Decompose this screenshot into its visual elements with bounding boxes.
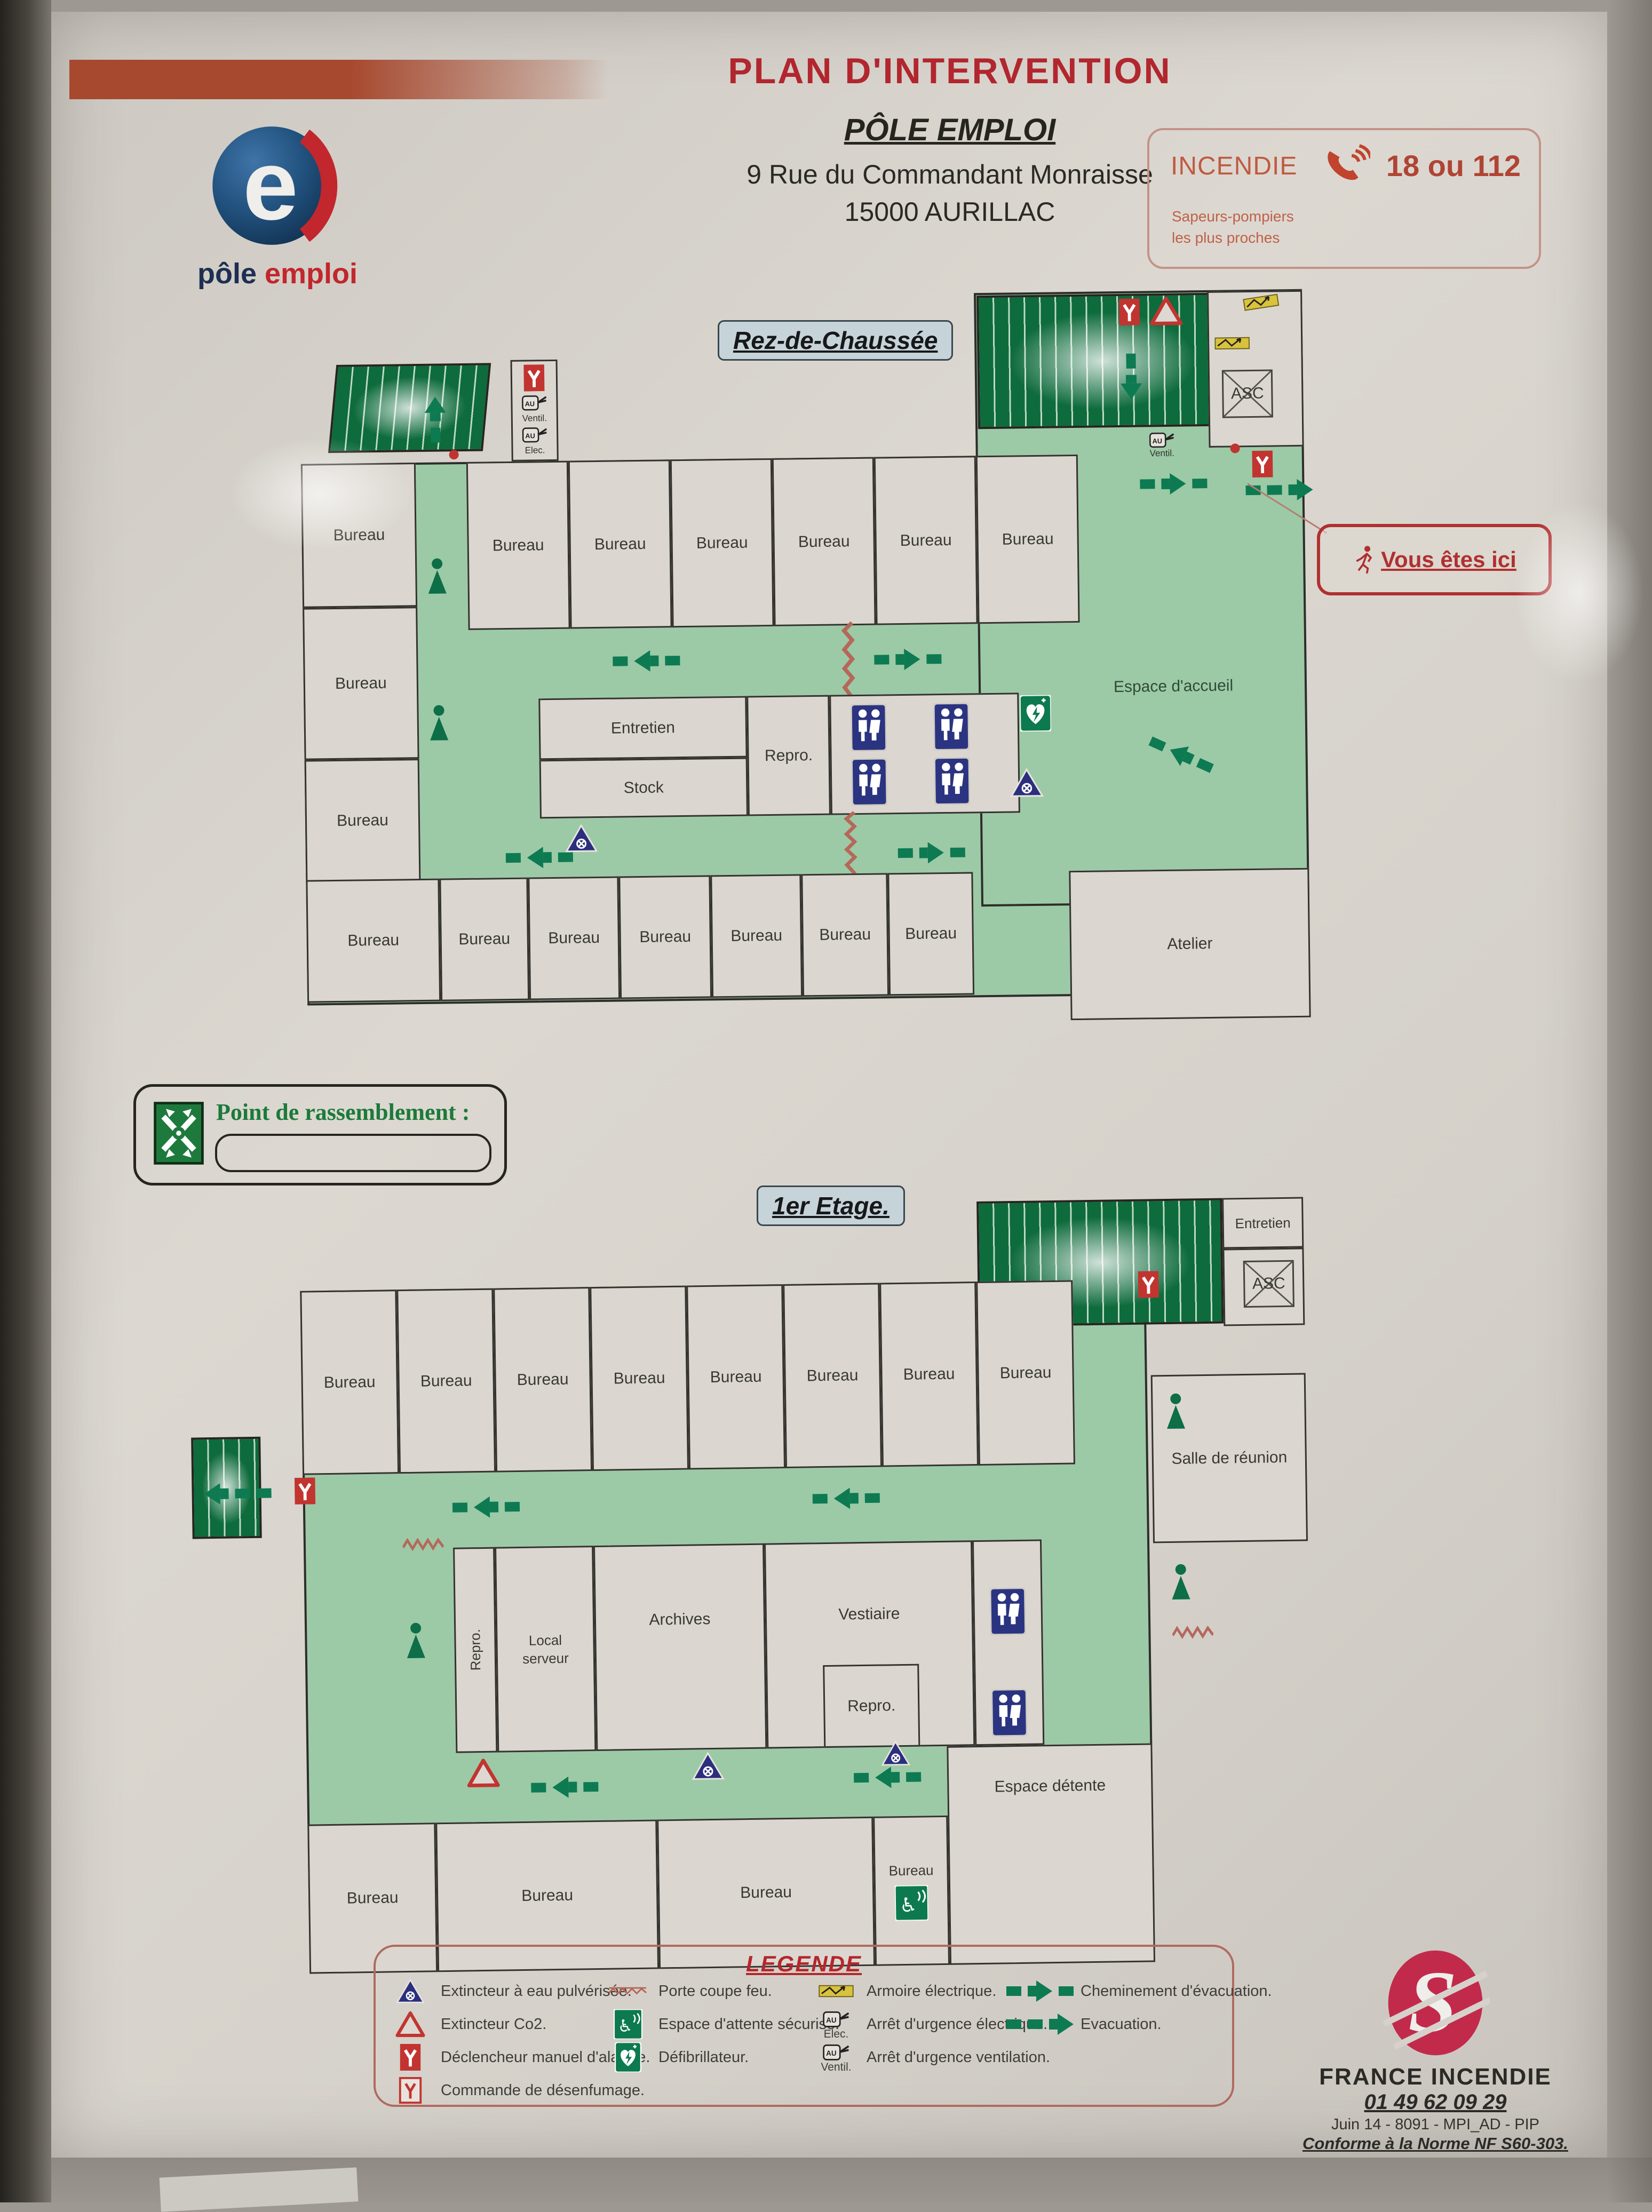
- you-are-here-box: Vous êtes ici: [1317, 524, 1552, 595]
- pole-emploi-logo-icon: e: [209, 118, 344, 253]
- room-bureau: Bureau: [874, 456, 978, 625]
- svg-text:AU: AU: [826, 2049, 837, 2057]
- wc-icon: [991, 1689, 1027, 1737]
- room-entretien: Entretien: [538, 696, 747, 760]
- assembly-point-box: Point de rassemblement :: [133, 1084, 507, 1185]
- svg-text:AU: AU: [1152, 437, 1162, 445]
- ventil-caption: Ventil.: [522, 413, 547, 424]
- room-bureau: Bureau: [710, 874, 803, 998]
- svg-text:AU: AU: [525, 432, 535, 440]
- room-label: Bureau: [888, 1860, 933, 1880]
- assembly-point-icon: [153, 1101, 204, 1166]
- svg-text:♿: ♿: [618, 2017, 633, 2036]
- room-label: Repro.: [465, 1629, 485, 1671]
- legend-title: LEGENDE: [376, 1951, 1232, 1977]
- alarm-dot-icon: [1230, 443, 1240, 453]
- emergency-stop-electric-icon: AU: [822, 2009, 851, 2028]
- extinguisher-co2-icon: [1149, 296, 1183, 327]
- fire-label: INCENDIE: [1171, 152, 1297, 181]
- alarm-trigger-icon: [523, 364, 545, 391]
- legend-item: AUVentil.Arrêt d'urgence ventilation.: [814, 2041, 1050, 2074]
- fire-door-icon: [608, 1985, 648, 1998]
- evacuation-path-icon: [854, 1767, 922, 1789]
- you-are-here-label: Vous êtes ici: [1381, 547, 1516, 572]
- evacuation-path-icon: [452, 1496, 520, 1518]
- room-bureau: Bureau: [783, 1283, 882, 1468]
- evacuation-path-icon: [898, 842, 965, 864]
- footer-phone: 01 49 62 09 29: [1291, 2090, 1579, 2114]
- legend-label: Extincteur à eau pulvérisée.: [441, 1983, 632, 2000]
- room-atelier: Atelier: [1069, 868, 1311, 1020]
- legend-label: Porte coupe feu.: [658, 1983, 772, 2000]
- brand-word-2: emploi: [265, 258, 358, 290]
- footer-reference: Juin 14 - 8091 - MPI_AD - PIP: [1291, 2116, 1579, 2134]
- room-bureau: Bureau: [439, 878, 529, 1001]
- wc-icon: [990, 1588, 1026, 1635]
- evacuation-path-icon: [874, 648, 941, 671]
- room-bureau: Bureau: [303, 607, 419, 760]
- alarm-trigger-icon: [294, 1477, 316, 1505]
- legend-label: Défibrillateur.: [658, 2049, 749, 2066]
- alarm-trigger-icon: [1252, 450, 1274, 477]
- legend-item: Défibrillateur.: [606, 2041, 839, 2074]
- alarm-trigger-icon: [1138, 1271, 1159, 1298]
- legend-item: Commande de désenfumage.: [388, 2074, 650, 2107]
- wc-icon: [934, 757, 970, 805]
- room-bureau: Bureau: [396, 1288, 496, 1474]
- runner-icon: [1352, 545, 1377, 575]
- room-bureau: Bureau ♿: [873, 1816, 950, 1966]
- room-bureau: Bureau: [305, 759, 421, 883]
- extinguisher-co2-icon: [467, 1758, 501, 1788]
- evacuation-exit-icon: [1006, 2014, 1074, 2035]
- legend-label: Cheminement d'évacuation.: [1081, 1983, 1272, 2000]
- extinguisher-water-icon: [880, 1740, 911, 1767]
- ground-floor-plan: AU Ventil. AU Elec. Bureau Bureau Bureau…: [288, 284, 1314, 1043]
- defibrillator-icon: [615, 2042, 641, 2072]
- fire-door-icon: [1172, 1625, 1214, 1640]
- fire-door-icon: [843, 811, 860, 875]
- wc-icon: [852, 758, 887, 806]
- elec-caption: Elec.: [824, 2028, 849, 2040]
- legend-item: ♿Espace d'attente sécurisé.: [606, 2008, 839, 2041]
- electrical-cabinet-icon: [1214, 336, 1250, 351]
- fire-door-icon: [402, 1537, 445, 1551]
- page-title: PLAN D'INTERVENTION: [614, 50, 1286, 92]
- emergency-note-line2: les plus proches: [1172, 227, 1294, 249]
- emergency-numbers: 18 ou 112: [1386, 148, 1521, 183]
- person-evacuating-icon: [1171, 1564, 1191, 1599]
- pole-emploi-wordmark: pôle emploi: [144, 257, 411, 290]
- alarm-trigger-icon: [400, 2044, 421, 2071]
- room-repro: Repro.: [746, 695, 831, 816]
- extinguisher-co2-icon: [395, 2011, 425, 2038]
- evacuation-path-icon: [813, 1487, 880, 1510]
- gf-stairs-icon: [328, 363, 491, 453]
- elevator-icon: ASC: [1222, 369, 1273, 418]
- brand-word-1: pôle: [197, 258, 257, 290]
- alarm-trigger-icon: [1118, 298, 1140, 325]
- room-bureau: Bureau: [528, 877, 620, 1000]
- phone-icon: [1321, 143, 1370, 188]
- elevator-label: ASC: [1245, 1262, 1293, 1306]
- emergency-note: Sapeurs-pompiers les plus proches: [1172, 206, 1294, 249]
- legend-column-2: Porte coupe feu. ♿Espace d'attente sécur…: [606, 1975, 839, 2074]
- room-bureau: Bureau: [976, 455, 1080, 624]
- legend-label: Armoire électrique.: [867, 1983, 996, 2000]
- person-evacuating-icon: [1166, 1394, 1186, 1429]
- evacuation-path-icon: [613, 650, 680, 672]
- assembly-point-blank-field: [215, 1134, 491, 1172]
- svg-text:e: e: [243, 129, 298, 241]
- fire-emergency-box: INCENDIE 18 ou 112 Sapeurs-pompiers les …: [1147, 128, 1541, 269]
- emergency-stop-electric-icon: AU: [521, 425, 549, 444]
- footer-company: FRANCE INCENDIE: [1291, 2064, 1579, 2090]
- room-bureau: Bureau: [801, 873, 889, 997]
- room-entretien: Entretien: [1222, 1197, 1304, 1248]
- extinguisher-water-icon: [690, 1751, 725, 1781]
- smoke-control-icon: [399, 2077, 422, 2104]
- wc-icon: [933, 703, 969, 750]
- evacuation-path-icon: [1006, 1980, 1074, 2002]
- person-evacuating-icon: [427, 558, 447, 593]
- emergency-stop-ventilation-icon: AU: [822, 2042, 851, 2062]
- assembly-point-label: Point de rassemblement :: [216, 1099, 470, 1126]
- room-local-serveur: Local serveur: [495, 1546, 596, 1753]
- legend-item: Cheminement d'évacuation.: [1008, 1975, 1272, 2008]
- evacuation-path-icon: [1140, 473, 1207, 495]
- electrical-cabinet-icon: [819, 1984, 854, 1999]
- evacuation-path-icon: [1120, 353, 1142, 399]
- room-espace-detente: Espace détente: [947, 1743, 1155, 1964]
- room-repro: Repro.: [453, 1547, 497, 1753]
- footer-norm: Conforme à la Norme NF S60-303.: [1291, 2134, 1579, 2153]
- svg-text:AU: AU: [826, 2016, 837, 2024]
- gf-entrance-stairs-icon: [976, 292, 1229, 429]
- alarm-dot-icon: [449, 450, 459, 459]
- room-bureau: Bureau: [300, 1290, 399, 1475]
- room-bureau: Bureau: [618, 875, 712, 999]
- person-evacuating-icon: [406, 1622, 426, 1658]
- room-bureau: Bureau: [301, 463, 417, 608]
- room-repro: Repro.: [823, 1664, 920, 1748]
- evacuation-exit-icon: [204, 1482, 272, 1505]
- emergency-stop-ventilation-icon: AU: [520, 393, 548, 412]
- room-bureau: Bureau: [306, 879, 441, 1003]
- secure-waiting-area-icon: ♿: [895, 1885, 928, 1921]
- svg-text:AU: AU: [525, 400, 535, 408]
- defibrillator-icon: [1020, 695, 1051, 732]
- room-bureau: Bureau: [879, 1282, 979, 1467]
- legend-box: LEGENDE Extincteur à eau pulvérisée. Ext…: [374, 1945, 1234, 2107]
- elec-caption: Elec.: [525, 445, 545, 455]
- person-evacuating-icon: [429, 705, 449, 740]
- emergency-note-line1: Sapeurs-pompiers: [1172, 206, 1294, 227]
- frame-right-shadow: [1607, 0, 1652, 2202]
- first-floor-plan: Entretien ASC Salle de réunion Bureau Bu…: [288, 1189, 1315, 1990]
- elevator-label: ASC: [1224, 371, 1272, 417]
- legend-label: Espace d'attente sécurisé.: [658, 2016, 839, 2033]
- fire-door-icon: [841, 621, 858, 700]
- room-bureau: Bureau: [976, 1280, 1075, 1465]
- frame-left-edge: [0, 0, 51, 2202]
- secure-waiting-area-icon: ♿: [614, 2009, 642, 2039]
- evacuation-path-icon: [506, 847, 573, 869]
- header-accent-bar: [69, 60, 608, 99]
- legend-column-4: Cheminement d'évacuation. Evacuation.: [1008, 1975, 1272, 2041]
- room-bureau: Bureau: [590, 1286, 689, 1471]
- ventil-caption: Ventil.: [821, 2062, 851, 2073]
- photo-of-intervention-plan: PLAN D'INTERVENTION PÔLE EMPLOI 9 Rue du…: [0, 0, 1652, 2202]
- extinguisher-water-icon: [1009, 767, 1045, 799]
- legend-item: Evacuation.: [1008, 2008, 1272, 2041]
- extinguisher-water-icon: [395, 1978, 425, 2004]
- gf-utility-panel: AU Ventil. AU Elec.: [510, 360, 558, 462]
- ventil-caption: Ventil.: [1149, 449, 1174, 459]
- room-bureau: Bureau: [466, 461, 570, 630]
- legend-label: Extincteur Co2.: [441, 2016, 546, 2033]
- room-bureau: Bureau: [670, 458, 774, 627]
- elevator-icon: ASC: [1243, 1260, 1294, 1308]
- evacuation-path-icon: [424, 396, 446, 442]
- room-bureau: Bureau: [493, 1287, 592, 1472]
- legend-label: Evacuation.: [1081, 2016, 1162, 2033]
- wc-icon: [851, 704, 886, 751]
- room-bureau: Bureau: [887, 872, 974, 996]
- legend-label: Arrêt d'urgence ventilation.: [867, 2049, 1050, 2066]
- room-accueil-label: Espace d'accueil: [1072, 676, 1275, 697]
- legend-item: Porte coupe feu.: [606, 1975, 839, 2008]
- france-incendie-logo-icon: S: [1381, 1946, 1490, 2062]
- room-stock: Stock: [539, 758, 748, 819]
- room-bureau: Bureau: [772, 457, 876, 626]
- evacuation-path-icon: [531, 1776, 599, 1799]
- svg-text:♿: ♿: [900, 1893, 918, 1916]
- room-bureau: Bureau: [568, 459, 672, 628]
- gf-entrance-room: [1207, 290, 1304, 448]
- room-archives: Archives: [593, 1543, 767, 1751]
- legend-label: Commande de désenfumage.: [441, 2082, 645, 2099]
- room-bureau: Bureau: [686, 1284, 785, 1469]
- emergency-stop-ventilation-icon: AU Ventil.: [1148, 431, 1176, 459]
